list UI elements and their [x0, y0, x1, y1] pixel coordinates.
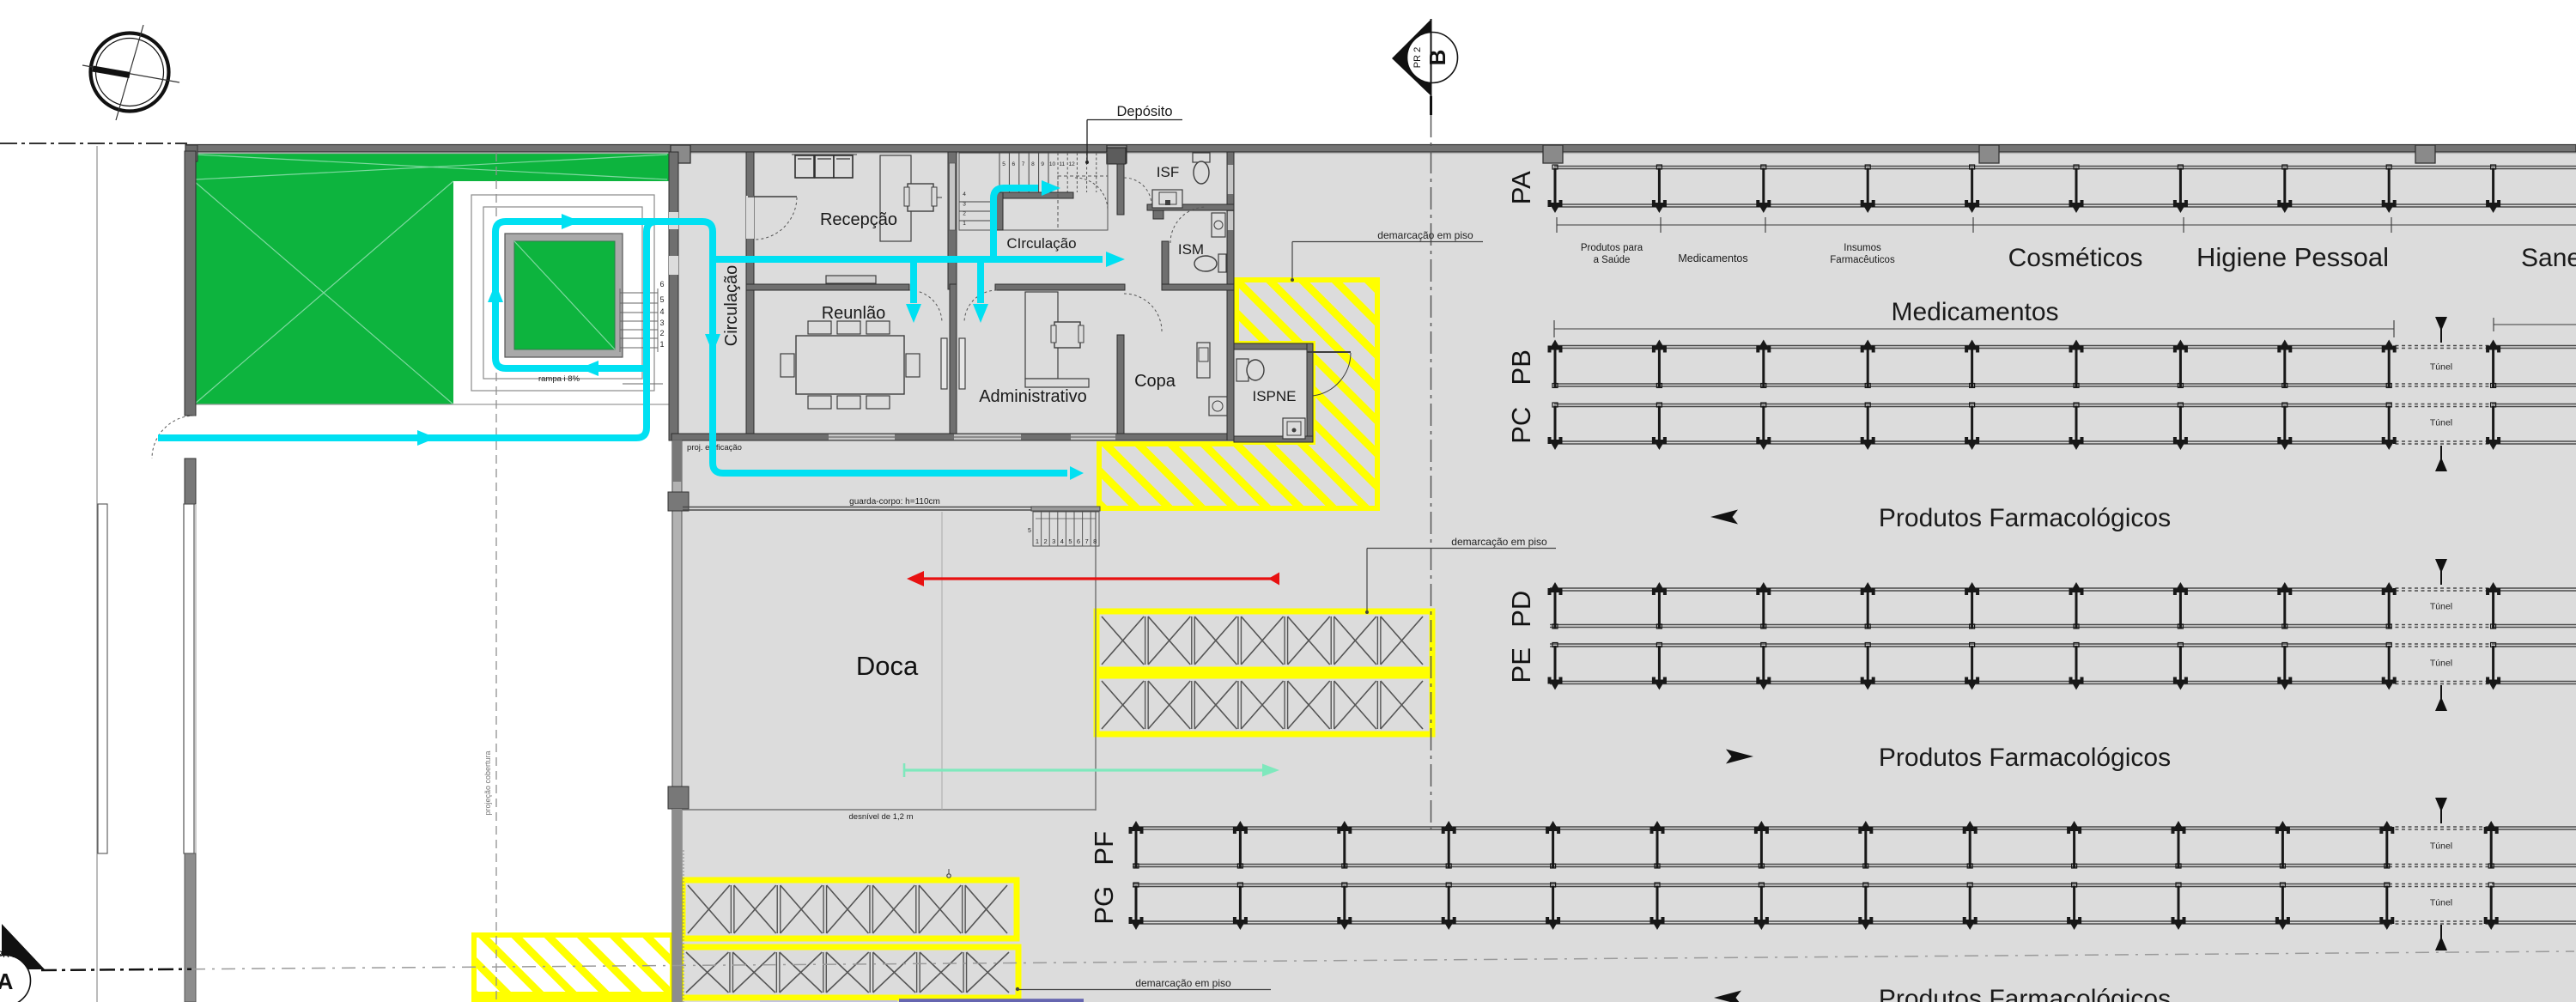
svg-text:6: 6	[1012, 161, 1015, 167]
svg-text:Túnel: Túnel	[2430, 898, 2452, 908]
svg-text:PR 2: PR 2	[1413, 47, 1423, 68]
svg-text:Circulação: Circulação	[722, 265, 741, 346]
svg-text:5: 5	[1002, 161, 1005, 167]
svg-text:5: 5	[1028, 528, 1031, 534]
svg-text:rampa i 8%: rampa i 8%	[538, 374, 580, 384]
svg-text:Reunlão: Reunlão	[822, 304, 886, 323]
svg-text:PA: PA	[1506, 171, 1536, 204]
svg-text:Cosméticos: Cosméticos	[2008, 244, 2143, 272]
svg-text:6: 6	[659, 280, 664, 288]
svg-text:Medicamentos: Medicamentos	[1678, 252, 1747, 264]
svg-text:Túnel: Túnel	[2430, 362, 2452, 373]
svg-text:Recepção: Recepção	[820, 210, 897, 229]
svg-text:Copa: Copa	[1134, 372, 1176, 391]
svg-text:Insumos: Insumos	[1844, 243, 1881, 253]
svg-text:2: 2	[963, 211, 966, 217]
svg-text:a Saúde: a Saúde	[1594, 255, 1631, 265]
svg-text:4: 4	[963, 191, 966, 197]
svg-text:PG: PG	[1089, 886, 1119, 925]
svg-text:Túnel: Túnel	[2430, 602, 2452, 612]
svg-text:Farmacêuticos: Farmacêuticos	[1830, 255, 1895, 265]
svg-text:Higiene Pessoal: Higiene Pessoal	[2196, 242, 2389, 272]
svg-text:PC: PC	[1506, 407, 1536, 444]
svg-text:PD: PD	[1506, 591, 1536, 628]
svg-text:11: 11	[1059, 161, 1065, 167]
svg-text:projeção cobertura: projeção cobertura	[483, 750, 492, 815]
svg-text:Saneantes: Saneantes	[2521, 244, 2576, 272]
svg-text:demarcação em piso: demarcação em piso	[1377, 229, 1473, 241]
svg-text:CIrculação: CIrculação	[1006, 235, 1076, 252]
svg-text:PB: PB	[1506, 349, 1536, 385]
svg-text:Produtos para: Produtos para	[1581, 243, 1643, 253]
svg-text:1: 1	[1036, 537, 1039, 545]
svg-text:7: 7	[1085, 537, 1089, 545]
svg-text:PR 2: PR 2	[0, 950, 17, 960]
svg-text:10: 10	[1049, 161, 1056, 167]
svg-text:Túnel: Túnel	[2430, 659, 2452, 669]
svg-text:Administrativo: Administrativo	[979, 387, 1087, 406]
svg-text:3: 3	[1052, 537, 1055, 545]
svg-text:2: 2	[659, 329, 664, 337]
svg-text:Produtos Farmacológicos: Produtos Farmacológicos	[1879, 744, 2171, 772]
svg-text:ISM: ISM	[1178, 241, 1204, 258]
svg-text:Túnel: Túnel	[2430, 841, 2452, 852]
svg-text:1: 1	[963, 221, 966, 227]
svg-text:12: 12	[1068, 161, 1075, 167]
svg-text:8: 8	[1031, 161, 1035, 167]
svg-text:Túnel: Túnel	[2430, 418, 2452, 428]
svg-text:9: 9	[1041, 161, 1044, 167]
svg-text:7: 7	[1022, 161, 1025, 167]
svg-text:Produtos Farmacológicos: Produtos Farmacológicos	[1879, 504, 2171, 532]
svg-text:guarda-corpo: h=110cm: guarda-corpo: h=110cm	[849, 497, 940, 507]
svg-text:Doca: Doca	[856, 651, 919, 681]
svg-text:3: 3	[659, 319, 664, 327]
svg-text:6: 6	[1077, 537, 1080, 545]
svg-text:B: B	[1425, 50, 1450, 66]
svg-text:PE: PE	[1506, 647, 1536, 683]
svg-text:desnível de 1,2 m: desnível de 1,2 m	[849, 812, 914, 822]
svg-text:5: 5	[659, 295, 664, 304]
svg-text:4: 4	[1060, 537, 1064, 545]
svg-text:demarcação em piso: demarcação em piso	[1451, 536, 1547, 548]
svg-text:A: A	[0, 969, 14, 994]
svg-text:3: 3	[963, 201, 966, 207]
svg-text:demarcação em piso: demarcação em piso	[1135, 977, 1231, 989]
svg-text:5: 5	[1068, 537, 1072, 545]
svg-text:4: 4	[659, 307, 664, 316]
svg-text:2: 2	[1044, 537, 1048, 545]
svg-text:8: 8	[1093, 537, 1097, 545]
svg-text:Depósito: Depósito	[1116, 104, 1172, 119]
svg-text:Produtos Farmacológicos: Produtos Farmacológicos	[1879, 985, 2171, 1002]
svg-text:Medicamentos: Medicamentos	[1891, 298, 2058, 326]
svg-text:ISPNE: ISPNE	[1252, 388, 1296, 404]
svg-text:ISF: ISF	[1157, 164, 1179, 180]
svg-text:1: 1	[659, 340, 664, 349]
svg-text:PF: PF	[1089, 831, 1119, 865]
